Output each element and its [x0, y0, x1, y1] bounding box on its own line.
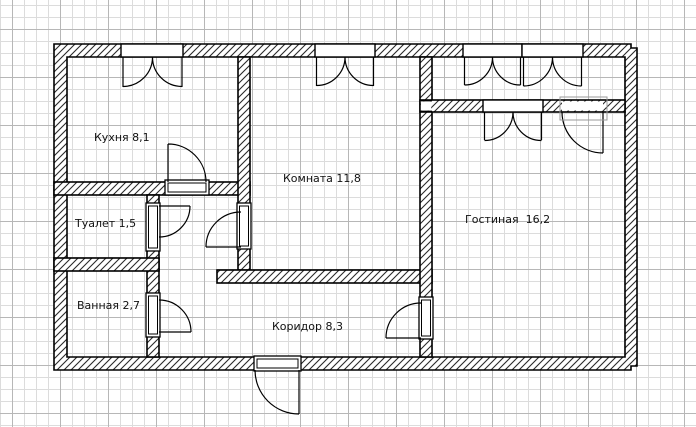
bathroom-door — [146, 293, 191, 337]
entry-door — [254, 356, 301, 414]
wall-junction-notch — [421, 101, 432, 111]
room-label-room: Комната 11,8 — [283, 173, 361, 184]
room-label-toilet: Туалет 1,5 — [75, 218, 136, 229]
wall-kitchen-corridor — [54, 182, 250, 195]
living-room-door — [386, 297, 433, 339]
room-label-living: Гостиная 16,2 — [465, 214, 550, 225]
room-label-corridor: Коридор 8,3 — [272, 321, 343, 332]
balcony-door — [560, 97, 607, 153]
kitchen-door — [165, 144, 209, 195]
floor-plan-drawing — [0, 0, 696, 427]
walls — [54, 44, 637, 370]
kitchen-window — [121, 44, 183, 87]
room-window — [315, 44, 375, 86]
balcony-window-left — [463, 44, 522, 85]
room-door — [206, 203, 251, 249]
windows — [121, 44, 583, 141]
room-label-bathroom: Ванная 2,7 — [77, 300, 140, 311]
wall-toilet-bathroom — [54, 258, 159, 271]
outer-wall — [54, 44, 637, 370]
balcony-inner-window — [483, 100, 543, 141]
room-label-kitchen: Кухня 8,1 — [94, 132, 150, 143]
wall-room-corridor — [217, 270, 432, 283]
toilet-door — [146, 203, 190, 251]
balcony-window-right — [522, 44, 583, 86]
